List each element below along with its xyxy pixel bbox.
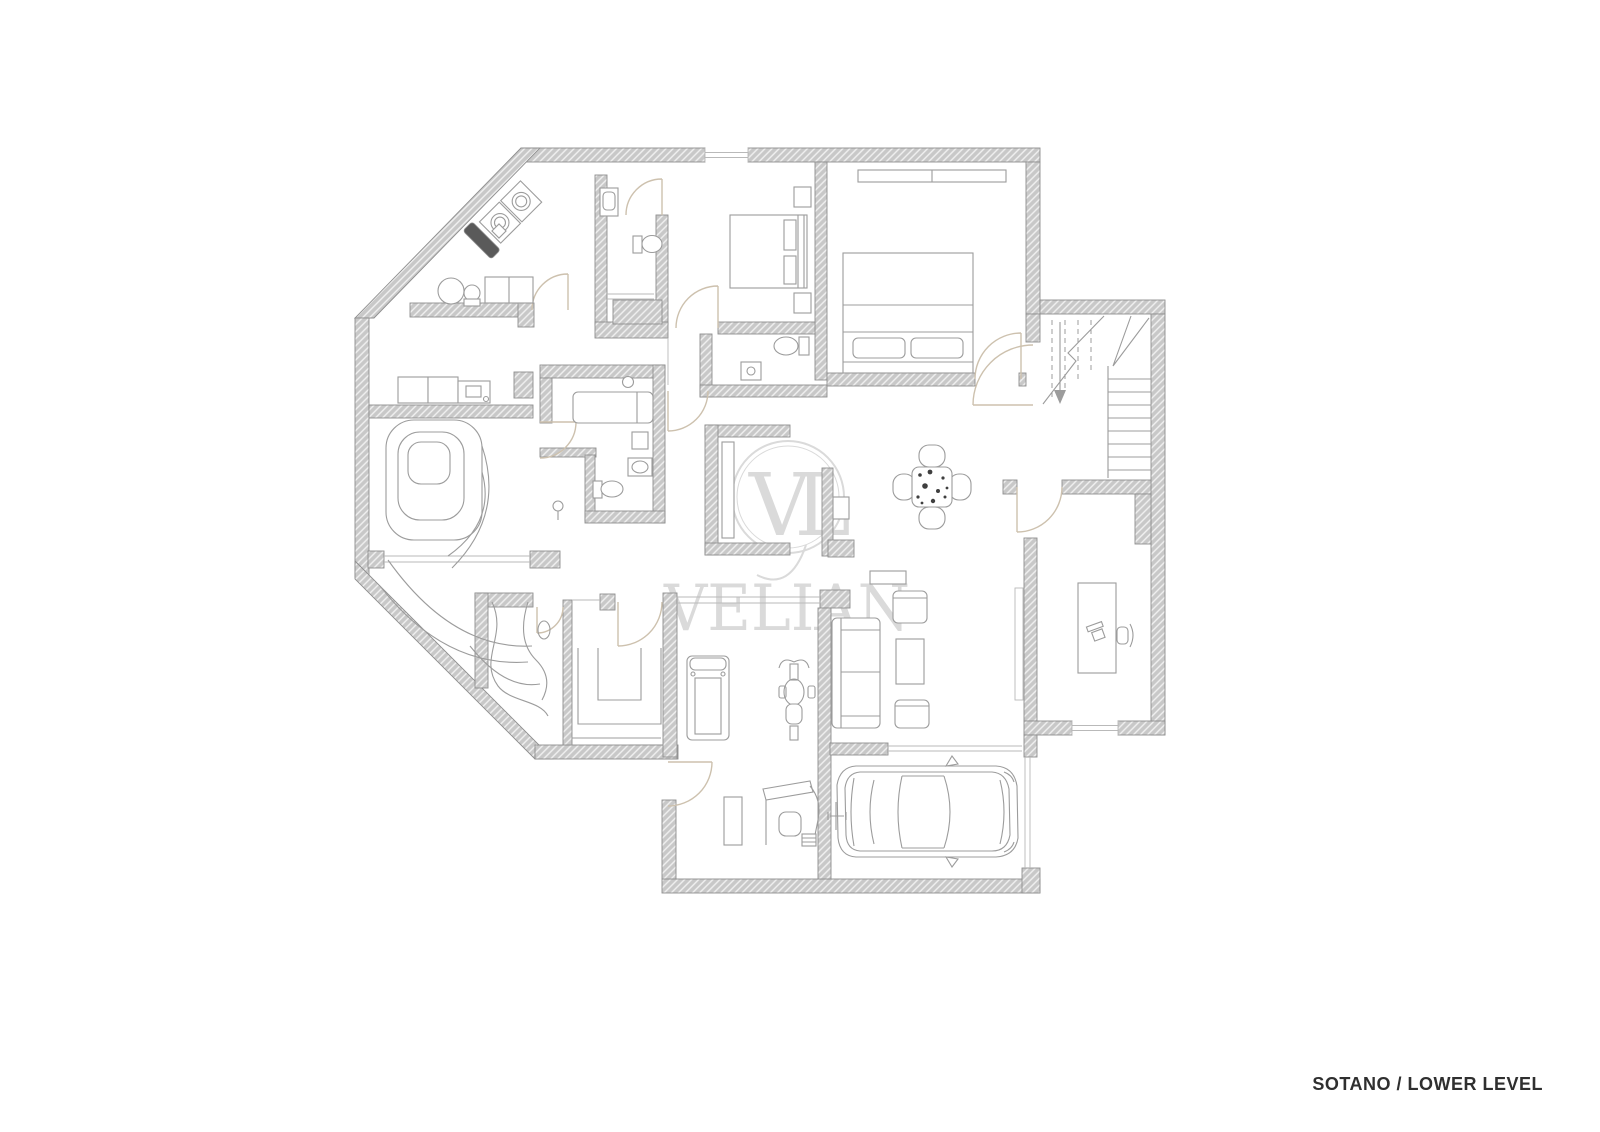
gym-exercise-mat — [724, 797, 742, 845]
armchair — [895, 700, 929, 728]
toilet-tank — [633, 236, 642, 253]
wall-wc-bottom — [585, 511, 665, 523]
wall-sauna-right — [663, 593, 677, 757]
window-top-wall — [705, 148, 748, 162]
plan-title: SOTANO / LOWER LEVEL — [1312, 1074, 1543, 1094]
wall-top-left — [521, 148, 705, 162]
wall-bottom-step — [1022, 868, 1040, 893]
wall-west — [355, 318, 369, 577]
wall-bedroom1-bottom — [718, 322, 815, 334]
wall-stair-top — [1040, 300, 1165, 314]
wall-tv-niche-bottom — [705, 543, 790, 555]
wall-massage-left — [540, 378, 552, 423]
wall-bedroom2-bottom — [827, 373, 975, 386]
wall-stair-left — [1026, 314, 1040, 342]
wall-glass-stub-mid — [530, 551, 560, 568]
wall-understair-stub — [1003, 480, 1017, 494]
sofa — [832, 618, 880, 728]
wall-northeast — [1026, 162, 1040, 314]
wall-bath2-shower-block — [613, 300, 662, 324]
wall-office-bottom-right — [1118, 721, 1165, 735]
nightstand — [794, 293, 811, 313]
wall-glass-stub-west — [368, 551, 384, 568]
coffee-table — [896, 639, 924, 684]
toilet-bowl — [774, 337, 798, 355]
wall-bedroom2-bottom-stub — [1019, 373, 1026, 386]
wall-sauna-bottom — [535, 745, 677, 759]
dining-chair — [919, 445, 945, 467]
wall-office-left — [1024, 538, 1037, 721]
wall-hall-corner-block — [828, 540, 854, 557]
bed-double — [843, 253, 973, 373]
wall-east — [1151, 314, 1165, 735]
wall-spa-top — [369, 405, 533, 418]
wall-garage-top — [830, 743, 888, 755]
toilet-bowl — [642, 236, 662, 253]
desk-chair — [1117, 627, 1128, 644]
window-office-bottom — [1072, 721, 1118, 735]
wall-gym-garage-divider — [818, 608, 831, 879]
wall-tv-niche-left — [705, 425, 718, 555]
wall-garage-stub-top — [1024, 735, 1037, 757]
round-basin — [438, 278, 464, 304]
floorplan-canvas: VL VELIAN — [0, 0, 1600, 1132]
nightstand — [794, 187, 811, 207]
wall-shower-sauna-divider — [563, 600, 572, 745]
wall-gym-block — [820, 590, 850, 608]
wall-office-bottom-left — [1024, 721, 1072, 735]
wall-gym-left — [662, 800, 676, 879]
wc-toilet-bowl — [601, 481, 623, 497]
wall-bedroom-divider — [815, 162, 827, 380]
kitchenette-counter — [398, 377, 490, 403]
wall-understair — [1062, 480, 1151, 494]
console-table — [870, 571, 906, 584]
page-background — [0, 0, 1600, 1132]
wall-top-right — [748, 148, 1040, 162]
wall-massage-right — [653, 365, 665, 523]
armchair — [893, 591, 927, 623]
bidet — [741, 362, 761, 380]
bathroom1-fixtures — [438, 277, 533, 306]
wall-massage-top — [540, 365, 665, 378]
stool — [623, 377, 634, 388]
wall-east-niche-block — [1135, 494, 1151, 544]
wall-bath3-bottom — [700, 385, 827, 397]
bar-sink — [458, 381, 490, 403]
wall-glass-stub-sauna — [600, 594, 615, 610]
massage-table — [573, 392, 653, 423]
wall-bottom — [662, 879, 1040, 893]
wall-massage-column — [514, 372, 533, 398]
dining-chair — [919, 507, 945, 529]
toilet-tank — [799, 337, 809, 355]
gym-treadmill — [687, 656, 729, 740]
